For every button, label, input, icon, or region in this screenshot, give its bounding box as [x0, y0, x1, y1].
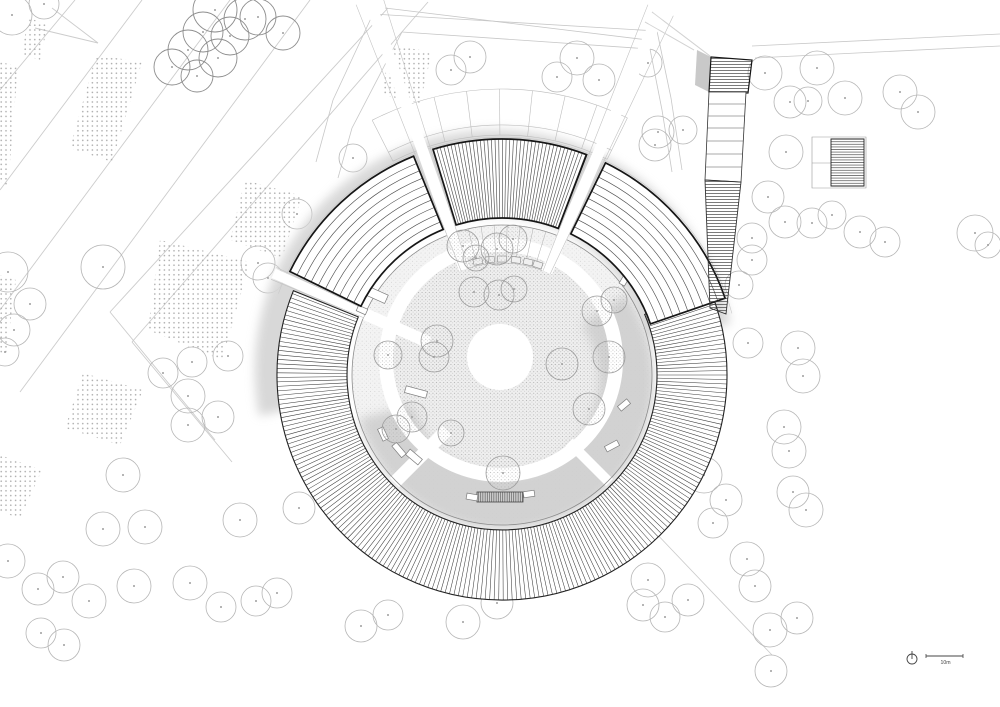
tree-trunk-dot	[816, 67, 818, 69]
tree-trunk-dot	[747, 342, 749, 344]
paving-dot-patch	[70, 55, 142, 162]
tree-trunk-dot	[598, 79, 600, 81]
tree-trunk-dot	[769, 629, 771, 631]
tree-trunk-dot	[789, 101, 791, 103]
plaza-tree-dot	[596, 310, 598, 312]
tree-trunk-dot	[807, 100, 809, 102]
tree-trunk-dot	[244, 18, 246, 20]
plaza-tree-dot	[450, 432, 452, 434]
tree-trunk-dot	[844, 97, 846, 99]
tree-trunk-dot	[144, 526, 146, 528]
boundary-line	[385, 8, 648, 40]
tree-trunk-dot	[133, 585, 135, 587]
forecourt-divider	[582, 105, 597, 148]
road-line	[132, 342, 232, 462]
tree-trunk-dot	[767, 196, 769, 198]
paving-dot-patch	[0, 62, 18, 186]
planter	[511, 256, 521, 263]
annex-building	[812, 137, 866, 188]
access-ramp	[705, 180, 741, 314]
boundary-line	[755, 46, 1000, 58]
tree-trunk-dot	[831, 214, 833, 216]
tree-trunk-dot	[899, 91, 901, 93]
tree-trunk-dot	[811, 222, 813, 224]
site-plan-drawing: 10m	[0, 0, 1000, 707]
plaza-tree-dot	[387, 354, 389, 356]
tree-trunk-dot	[122, 474, 124, 476]
tree-trunk-dot	[664, 616, 666, 618]
forecourt-divider	[372, 120, 393, 161]
tree	[0, 544, 25, 578]
tree-trunk-dot	[217, 416, 219, 418]
tree-trunk-dot	[788, 450, 790, 452]
tree-trunk-dot	[229, 35, 231, 37]
tree-trunk-dot	[7, 271, 9, 273]
site-plan-page: 10m	[0, 0, 1000, 707]
tree-trunk-dot	[220, 606, 222, 608]
tree-trunk-dot	[802, 375, 804, 377]
tree-trunk-dot	[88, 600, 90, 602]
tree-trunk-dot	[13, 329, 15, 331]
boundary-line	[373, 14, 657, 31]
boundary-line	[752, 34, 1000, 46]
center-lawn-circle	[467, 324, 533, 390]
annex-roof-hatch	[831, 139, 864, 186]
forecourt-divider	[555, 96, 565, 141]
tree-trunk-dot	[657, 131, 659, 133]
tree-trunk-dot	[102, 266, 104, 268]
tree-trunk-dot	[239, 519, 241, 521]
boundary-line	[671, 98, 682, 170]
boundary-line	[316, 100, 333, 162]
plaza-tree-dot	[436, 340, 438, 342]
plaza-tree-dot	[462, 245, 464, 247]
tree-trunk-dot	[267, 277, 269, 279]
plaza-tree-dot	[513, 288, 515, 290]
paving-dot-patch	[22, 18, 48, 60]
plaza-tree-dot	[473, 291, 475, 293]
stairs	[477, 492, 523, 502]
plaza-tree-dot	[561, 363, 563, 365]
tree-trunk-dot	[282, 32, 284, 34]
tree-trunk-dot	[202, 31, 204, 33]
plaza-tree-dot	[588, 408, 590, 410]
tree-trunk-dot	[7, 560, 9, 562]
tree-trunk-dot	[162, 372, 164, 374]
tree-trunk-dot	[171, 66, 173, 68]
tree-trunk-dot	[751, 259, 753, 261]
tree-trunk-dot	[4, 351, 6, 353]
north-arrow-icon	[907, 651, 917, 664]
tree-trunk-dot	[974, 232, 976, 234]
tree-trunk-dot	[642, 604, 644, 606]
tree-trunk-dot	[687, 599, 689, 601]
tree-trunk-dot	[462, 621, 464, 623]
tree-trunk-dot	[797, 347, 799, 349]
tree-trunk-dot	[187, 424, 189, 426]
boundary-line	[657, 31, 671, 98]
tree-trunk-dot	[785, 151, 787, 153]
tree-trunk-dot	[469, 56, 471, 58]
tree-trunk-dot	[387, 614, 389, 616]
tree-trunk-dot	[102, 528, 104, 530]
paving-dot-patch	[65, 373, 143, 445]
plaza-tree-dot	[395, 428, 397, 430]
tree-trunk-dot	[738, 284, 740, 286]
tree-trunk-dot	[217, 57, 219, 59]
tree-trunk-dot	[255, 600, 257, 602]
tree-trunk-dot	[783, 426, 785, 428]
forecourt-divider	[528, 91, 533, 137]
tree-trunk-dot	[770, 670, 772, 672]
boundary-line	[333, 14, 373, 100]
tree-trunk-dot	[654, 144, 656, 146]
scale-label: 10m	[940, 660, 950, 666]
tree-trunk-dot	[576, 57, 578, 59]
tree-trunk-dot	[40, 632, 42, 634]
tree-trunk-dot	[257, 262, 259, 264]
plaza-tree-dot	[512, 238, 514, 240]
tree-trunk-dot	[764, 72, 766, 74]
tree-trunk-dot	[682, 129, 684, 131]
tower-shaft	[705, 92, 746, 182]
paving-dot-patch	[148, 240, 250, 360]
plaza-tree-dot	[475, 257, 477, 259]
legend: 10m	[907, 651, 963, 666]
tree-trunk-dot	[751, 237, 753, 239]
tree-trunk-dot	[360, 625, 362, 627]
tower-shadow	[695, 50, 711, 92]
plaza-tree-dot	[433, 356, 435, 358]
plaza-tree-dot	[502, 472, 504, 474]
tree-trunk-dot	[796, 617, 798, 619]
tree-trunk-dot	[884, 241, 886, 243]
tree-trunk-dot	[276, 592, 278, 594]
tree-trunk-dot	[805, 509, 807, 511]
tree-trunk-dot	[11, 14, 13, 16]
plaza-tree-dot	[411, 416, 413, 418]
tree-trunk-dot	[725, 499, 727, 501]
tree-trunk-dot	[187, 49, 189, 51]
tree-trunk-dot	[62, 576, 64, 578]
plaza-tree-dot	[613, 299, 615, 301]
tree-trunk-dot	[712, 522, 714, 524]
tree-trunk-dot	[29, 303, 31, 305]
forecourt-divider	[434, 97, 445, 142]
tree-trunk-dot	[496, 602, 498, 604]
tree-trunk-dot	[189, 582, 191, 584]
forecourt-divider	[467, 91, 473, 137]
tree-trunk-dot	[37, 588, 39, 590]
paving-dot-patch	[0, 455, 42, 518]
tree-trunk-dot	[214, 9, 216, 11]
tree-trunk-dot	[859, 231, 861, 233]
tree-trunk-dot	[298, 507, 300, 509]
tree-trunk-dot	[647, 62, 649, 64]
tree-trunk-dot	[746, 558, 748, 560]
tree-trunk-dot	[296, 213, 298, 215]
plaza-tree-dot	[496, 248, 498, 250]
tree-trunk-dot	[191, 361, 193, 363]
tree-trunk-dot	[196, 75, 198, 77]
tree-trunk-dot	[754, 585, 756, 587]
boundary-line	[650, 49, 662, 110]
tower-top-block	[709, 57, 752, 93]
tree-trunk-dot	[792, 491, 794, 493]
tree-trunk-dot	[987, 244, 989, 246]
tree-trunk-dot	[43, 3, 45, 5]
tree-trunk-dot	[63, 644, 65, 646]
plaza-tree-dot	[608, 356, 610, 358]
tree-trunk-dot	[647, 579, 649, 581]
tree-trunk-dot	[917, 111, 919, 113]
tree-trunk-dot	[257, 16, 259, 18]
stair-flank	[523, 490, 535, 497]
tree-trunk-dot	[784, 221, 786, 223]
tree-trunk-dot	[352, 157, 354, 159]
tree-trunk-dot	[450, 69, 452, 71]
tree-trunk-dot	[187, 395, 189, 397]
plaza-tree-dot	[498, 294, 500, 296]
boundary-line	[402, 32, 650, 49]
tree-trunk-dot	[227, 355, 229, 357]
tree-trunk-dot	[556, 76, 558, 78]
